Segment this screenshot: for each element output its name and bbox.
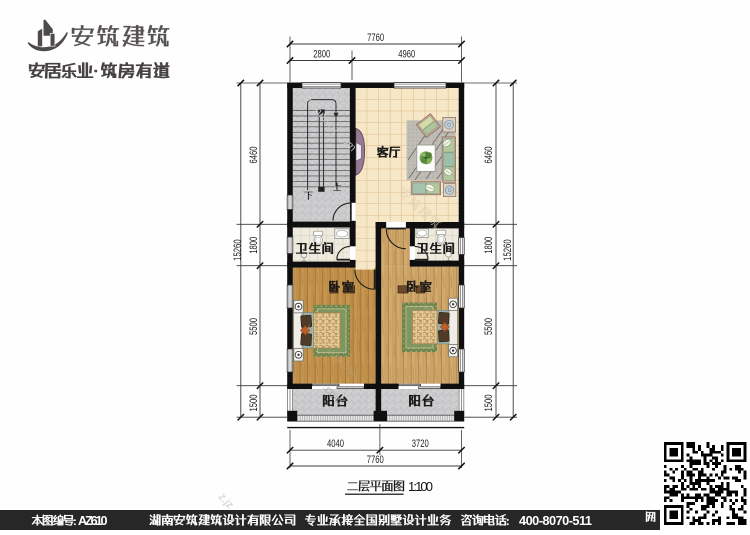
svg-text:2800: 2800 [313,49,330,61]
svg-text:1500: 1500 [248,394,260,411]
svg-text:15260: 15260 [232,239,244,261]
svg-text:5500: 5500 [248,318,260,335]
svg-text:1500: 1500 [483,394,495,411]
svg-text:5500: 5500 [483,318,495,335]
svg-text:4960: 4960 [398,49,415,61]
svg-text:6460: 6460 [483,146,495,163]
svg-text:3720: 3720 [412,438,429,450]
svg-text:6460: 6460 [248,146,260,163]
svg-text:AZ610: AZ610 [78,514,108,528]
svg-text:400-8070-511: 400-8070-511 [519,513,592,528]
svg-text:7760: 7760 [367,32,384,44]
svg-text:1800: 1800 [248,237,260,254]
svg-text:15260: 15260 [502,239,514,261]
svg-text:1:100: 1:100 [408,479,433,494]
svg-text:1800: 1800 [483,237,495,254]
svg-text:7760: 7760 [367,454,384,466]
svg-text:4040: 4040 [327,438,344,450]
